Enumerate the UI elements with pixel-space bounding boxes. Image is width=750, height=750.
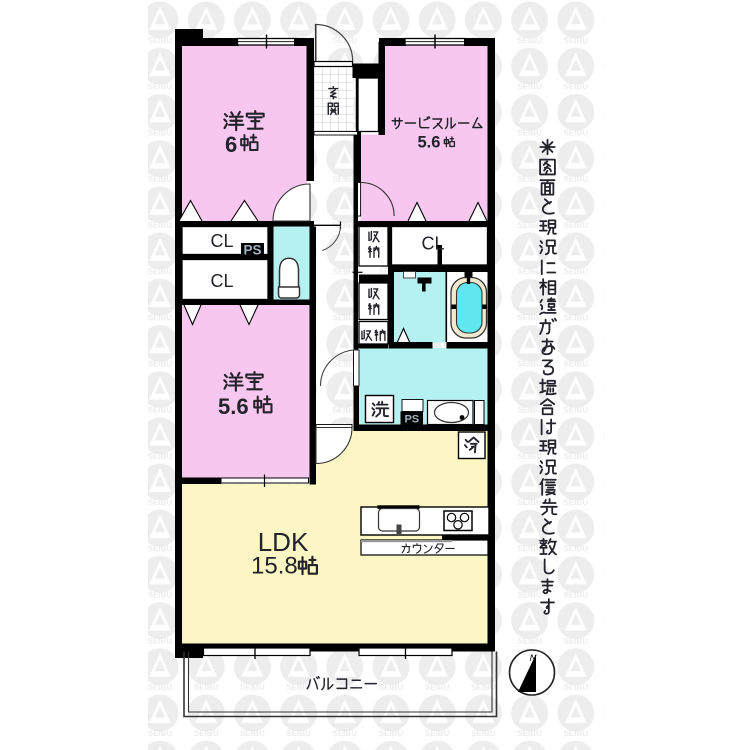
svg-text:CL: CL	[421, 234, 444, 254]
svg-text:PS: PS	[404, 414, 419, 426]
svg-text:5.6: 5.6	[218, 394, 249, 419]
svg-text:N: N	[530, 653, 537, 664]
svg-text:15.8: 15.8	[251, 553, 298, 580]
svg-text:CL: CL	[210, 271, 233, 291]
svg-text:CL: CL	[210, 231, 233, 251]
svg-text:5.6: 5.6	[418, 134, 441, 152]
svg-text:6: 6	[225, 132, 237, 157]
